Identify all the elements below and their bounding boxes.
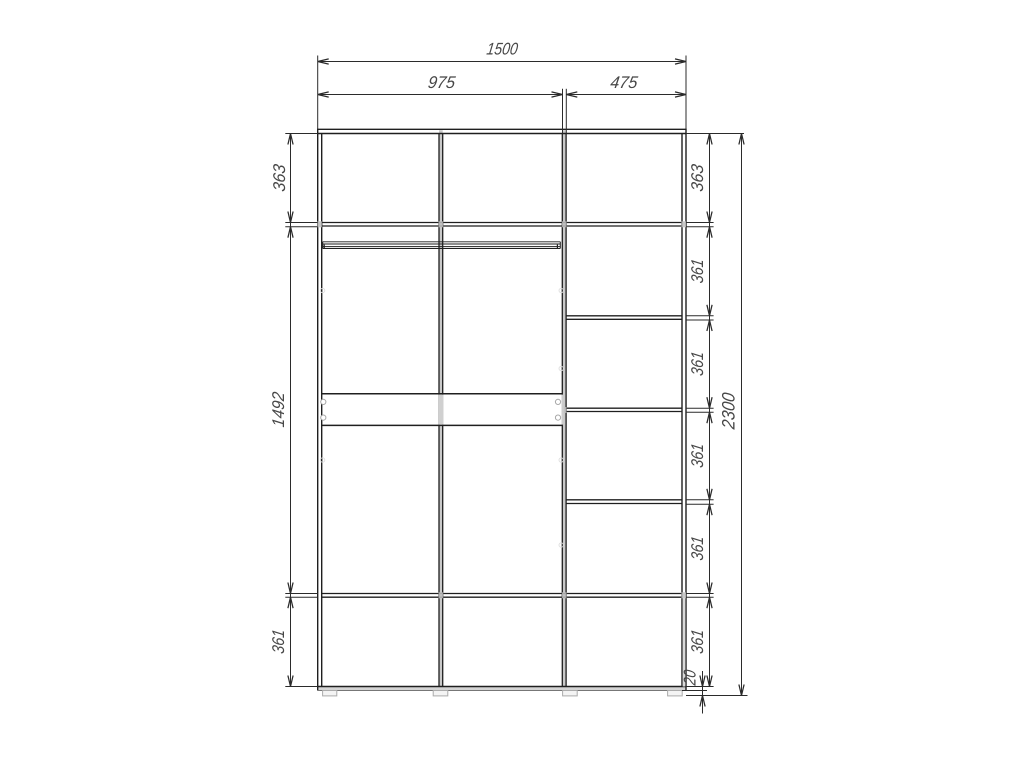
svg-text:475: 475 [609, 73, 639, 92]
svg-text:361: 361 [688, 535, 707, 562]
svg-text:363: 363 [270, 163, 289, 193]
svg-text:1492: 1492 [269, 390, 288, 428]
svg-text:361: 361 [688, 350, 707, 377]
svg-text:1500: 1500 [485, 40, 519, 59]
svg-text:361: 361 [688, 442, 707, 469]
svg-text:2300: 2300 [719, 391, 739, 431]
svg-text:361: 361 [269, 628, 288, 655]
svg-text:20: 20 [681, 668, 700, 687]
svg-text:361: 361 [688, 628, 707, 655]
svg-text:975: 975 [427, 73, 457, 92]
svg-text:363: 363 [688, 163, 707, 193]
svg-text:361: 361 [688, 258, 707, 285]
